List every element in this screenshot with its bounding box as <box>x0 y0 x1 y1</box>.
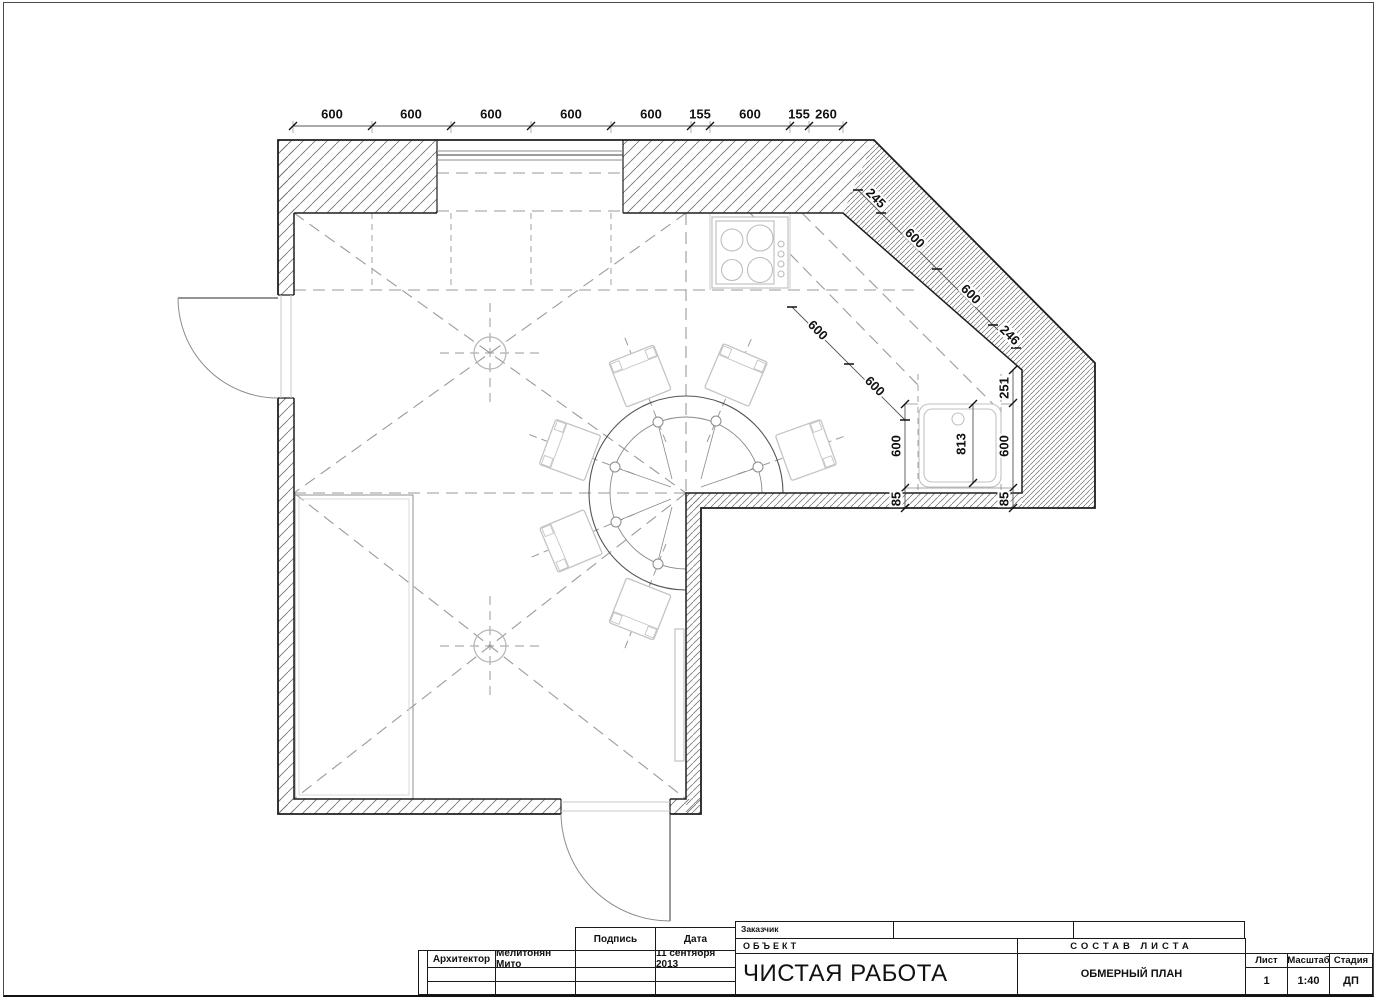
customer-cell <box>1073 921 1245 939</box>
cooktop <box>710 213 790 290</box>
empty-row-cell <box>495 967 576 982</box>
dimension-label: 600 <box>320 108 344 121</box>
empty-row-cell <box>655 981 736 995</box>
window <box>437 151 623 160</box>
dimension-label: 600 <box>639 108 663 121</box>
dimension-label: 155 <box>787 108 811 121</box>
empty-row-cell <box>495 981 576 995</box>
drawing-sheet: 6006006006006001556001552602456006002466… <box>0 0 1378 1000</box>
ceiling-dashed-lines <box>294 173 1001 799</box>
dimension-label: 155 <box>688 108 712 121</box>
dimension-label: 813 <box>955 432 968 456</box>
customer-cell <box>893 921 1074 939</box>
date-value: 11 сентября 2013 <box>655 950 736 968</box>
architect-name: Мелитонян Мито <box>495 950 576 968</box>
dimension-label: 600 <box>399 108 423 121</box>
stage-header: Стадия <box>1329 953 1373 968</box>
empty-row-cell <box>655 967 736 982</box>
dimension-label: 251 <box>998 376 1011 400</box>
sostav-lista-label: СОСТАВ ЛИСТА <box>1017 938 1246 954</box>
stool <box>775 419 836 480</box>
door-bottom <box>561 802 670 921</box>
dimension-label: 85 <box>998 491 1011 507</box>
empty-row-cell <box>575 967 656 982</box>
scale-value: 1:40 <box>1287 967 1330 995</box>
dimension-label: 260 <box>814 108 838 121</box>
dimension-label: 85 <box>890 491 903 507</box>
tall-cabinet <box>675 629 684 761</box>
empty-row-cell <box>575 981 656 995</box>
dimension-label: 600 <box>479 108 503 121</box>
project-title: ЧИСТАЯ РАБОТА <box>735 953 1018 995</box>
dimension-label: 600 <box>559 108 583 121</box>
architect-label: Архитектор <box>427 950 496 968</box>
dimension-label: 600 <box>890 434 903 458</box>
sheet-header: Лист <box>1245 953 1288 968</box>
stage-value: ДП <box>1329 967 1373 995</box>
empty-row-cell <box>427 981 496 995</box>
customer-label: Заказчик <box>735 921 894 939</box>
dimension-label: 600 <box>738 108 762 121</box>
signature-cell <box>575 950 656 968</box>
wardrobe <box>295 495 413 799</box>
dimension-label: 600 <box>998 434 1011 458</box>
floor-plan <box>0 0 1378 1000</box>
ceiling-light <box>440 303 540 696</box>
scale-header: Масштаб <box>1287 953 1330 968</box>
date-header: Дата <box>655 927 736 951</box>
sheet-value: 1 <box>1245 967 1288 995</box>
signature-header: Подпись <box>575 927 656 951</box>
door-left <box>178 295 291 398</box>
stool <box>609 345 671 407</box>
stool <box>705 344 768 407</box>
object-label: ОБЪЕКТ <box>735 938 1018 954</box>
drawing-name: ОБМЕРНЫЙ ПЛАН <box>1017 953 1246 995</box>
empty-row-cell <box>427 967 496 982</box>
